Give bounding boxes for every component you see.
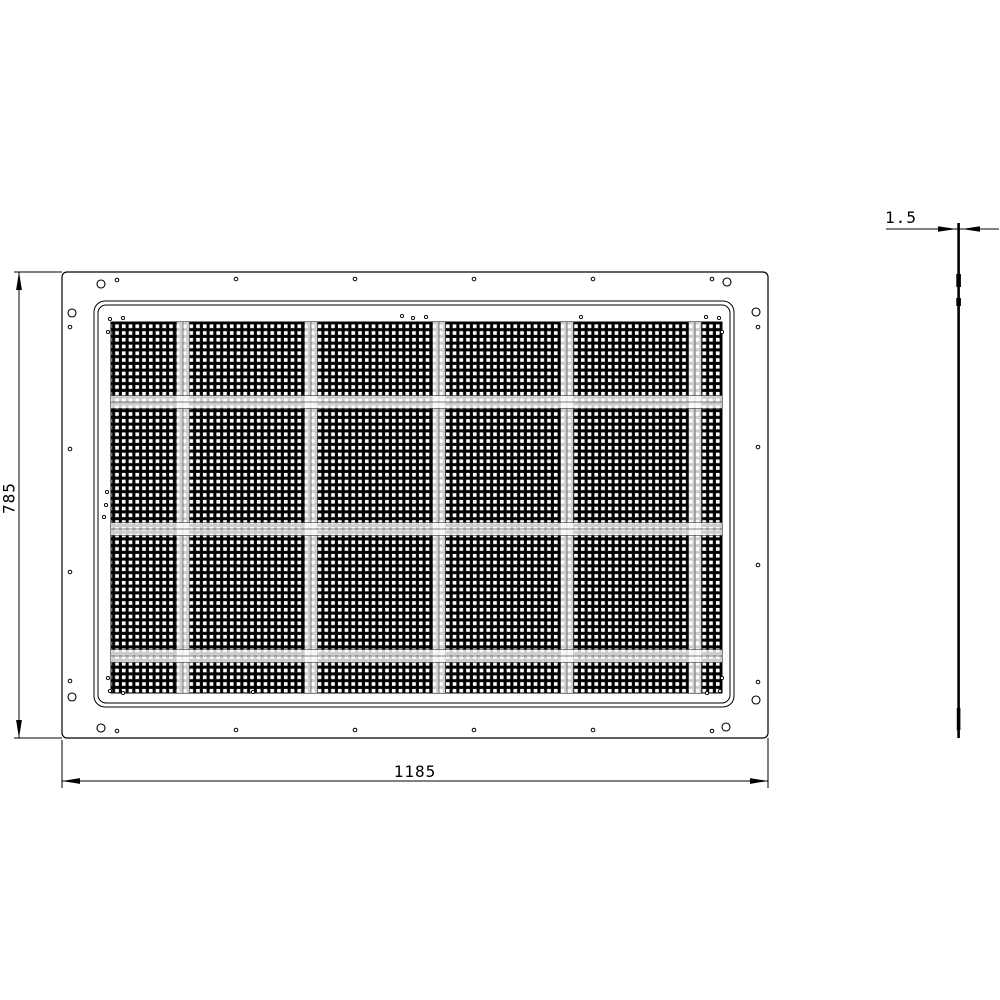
arrow-inward-left-icon — [962, 226, 980, 232]
hole-small — [472, 728, 476, 732]
hole-large — [97, 724, 105, 732]
mesh-mark — [400, 314, 403, 317]
mesh-mark — [705, 691, 708, 694]
hole-large — [722, 723, 730, 731]
mesh-mark — [718, 689, 721, 692]
hole-small — [234, 277, 238, 281]
side-view: 1.5 — [885, 208, 999, 738]
dimension-width: 1185 — [62, 738, 768, 788]
hole-small — [472, 277, 476, 281]
mesh-area — [111, 322, 722, 693]
cad-canvas: 785 1185 1.5 — [0, 0, 1000, 1000]
mesh-mark — [121, 316, 124, 319]
mesh-mark — [102, 515, 105, 518]
mesh-mark — [717, 316, 720, 319]
mesh-mark — [105, 490, 108, 493]
hole-small — [756, 680, 760, 684]
arrow-down-icon — [16, 720, 22, 738]
side-view-lug — [956, 274, 961, 287]
dim-width-label: 1185 — [394, 762, 437, 781]
hole-small — [68, 679, 72, 683]
hole-large — [68, 309, 76, 317]
mesh-mark — [106, 330, 109, 333]
arrow-left-icon — [62, 778, 80, 784]
mesh-mark — [720, 330, 723, 333]
front-view — [62, 272, 768, 738]
hole-small — [710, 729, 714, 733]
mesh-mark — [411, 316, 414, 319]
hole-small — [710, 277, 714, 281]
hole-small — [234, 728, 238, 732]
side-view-lug — [957, 708, 961, 730]
mesh-mark — [579, 315, 582, 318]
dim-height-label: 785 — [0, 482, 19, 514]
mesh-mark — [108, 317, 111, 320]
hole-small — [115, 278, 119, 282]
mesh-mark — [704, 315, 707, 318]
mesh-mark — [108, 689, 111, 692]
mesh-mark — [104, 503, 107, 506]
hole-small — [68, 570, 72, 574]
hole-small — [68, 447, 72, 451]
dim-thickness-label: 1.5 — [885, 208, 917, 227]
arrow-up-icon — [16, 272, 22, 290]
hole-large — [68, 693, 76, 701]
hole-small — [353, 277, 357, 281]
hole-large — [97, 280, 105, 288]
dimension-height: 785 — [0, 272, 62, 738]
side-view-lug — [956, 298, 961, 306]
hole-small — [756, 445, 760, 449]
hole-large — [752, 696, 760, 704]
hole-small — [68, 325, 72, 329]
mesh-mark — [251, 690, 254, 693]
hole-small — [756, 563, 760, 567]
mesh-mark — [424, 315, 427, 318]
technical-drawing: 785 1185 1.5 — [0, 0, 1000, 1000]
hole-small — [115, 729, 119, 733]
mesh-mark — [720, 676, 723, 679]
mesh-mark — [121, 691, 124, 694]
hole-small — [353, 728, 357, 732]
hole-small — [591, 728, 595, 732]
hole-small — [591, 277, 595, 281]
mesh-mark — [106, 676, 109, 679]
hole-small — [756, 325, 760, 329]
arrow-inward-right-icon — [938, 226, 957, 232]
hole-large — [723, 278, 731, 286]
hole-large — [752, 308, 760, 316]
arrow-right-icon — [750, 778, 768, 784]
